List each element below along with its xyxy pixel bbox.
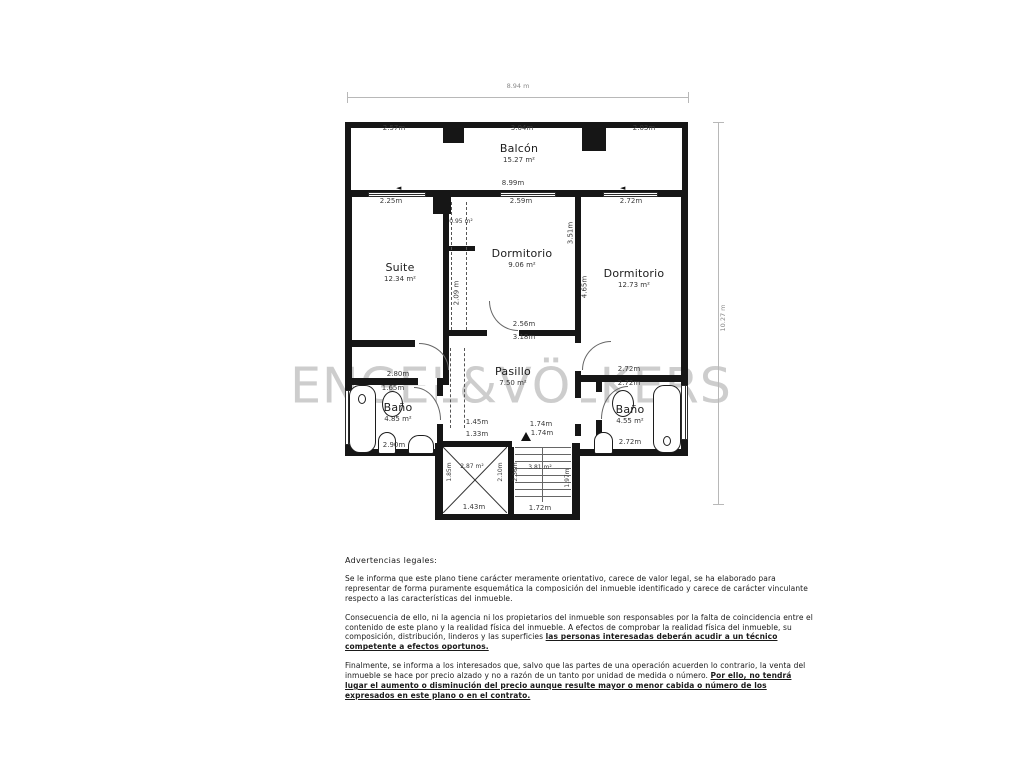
room-name: Baño [384, 402, 413, 415]
dim-label: 1.65m [382, 385, 404, 392]
door-arc [582, 341, 611, 370]
area-label: 3.81 m² [528, 465, 552, 471]
bidet-icon [408, 435, 434, 454]
floor-plan-page: ENGEL&VÖLKERS 8.94 m 10.27 m [0, 0, 1024, 768]
room-area: 12.73 m² [604, 281, 665, 289]
dim-label: 1.45m [466, 419, 488, 426]
dim-tick [347, 92, 348, 103]
room-area: 7.50 m² [495, 379, 531, 387]
dim-label: 2.59m [510, 198, 532, 205]
legal-disclaimer: Advertencias legales: Se le informa que … [345, 556, 815, 710]
door-opening [575, 398, 581, 424]
overall-width-dim: 8.94 m [507, 83, 530, 90]
wall [682, 122, 688, 196]
stairs-icon [515, 447, 571, 499]
room-dormitorio-2: Dormitorio 12.73 m² [604, 268, 665, 289]
dim-label: 3.04m [511, 125, 533, 132]
dim-label: 1.74m [531, 430, 553, 437]
room-pasillo: Pasillo 7.50 m² [495, 366, 531, 387]
area-label: 2.87 m² [460, 464, 484, 470]
wall [435, 514, 580, 520]
dim-label: 2.36m [513, 462, 519, 481]
room-bano-2: Baño 4.55 m² [616, 404, 645, 425]
room-name: Suite [384, 262, 416, 275]
room-name: Baño [616, 404, 645, 417]
dim-label: 2.72m [618, 366, 640, 373]
dim-label: 3.18m [513, 334, 535, 341]
legal-paragraph-2: Consecuencia de ello, ni la agencia ni l… [345, 613, 815, 653]
dim-label: 2.72m [619, 439, 641, 446]
overall-height-dim: 10.27 m [720, 304, 727, 331]
dim-label: 2.90m [383, 442, 405, 449]
wardrobe-dashed [450, 348, 465, 428]
dim-label: 1.97m [565, 468, 571, 487]
dim-tick [688, 92, 689, 103]
room-area: 4.85 m² [384, 415, 413, 423]
pillar [443, 123, 464, 143]
stairs-centerline [542, 447, 543, 502]
pillar [582, 123, 606, 151]
window [368, 192, 426, 197]
dim-label: 8.99m [502, 180, 524, 187]
dim-label: 2.80m [387, 371, 409, 378]
dim-label: 1.43m [463, 504, 485, 511]
dim-label: 1.72m [529, 505, 551, 512]
dim-label: 1.33m [466, 431, 488, 438]
dim-tick [713, 504, 724, 505]
room-name: Pasillo [495, 366, 531, 379]
dim-label: 1.85m [447, 462, 453, 481]
window [603, 192, 658, 197]
toilet-icon [594, 432, 613, 454]
room-area: 15.27 m² [500, 156, 538, 164]
room-bano-1: Baño 4.85 m² [384, 402, 413, 423]
dim-label: 2.72m [618, 380, 640, 387]
wall [345, 122, 351, 196]
dim-label: 1.74m [530, 421, 552, 428]
legal-paragraph-1: Se le informa que este plano tiene carác… [345, 574, 815, 604]
bathtub-drain-icon [358, 394, 366, 404]
dim-label: 2.03m [633, 125, 655, 132]
dim-tick [713, 122, 724, 123]
legal-paragraph-3: Finalmente, se informa a los interesados… [345, 661, 815, 701]
room-name: Dormitorio [492, 248, 553, 261]
dim-line [347, 97, 688, 98]
window [681, 385, 688, 440]
stairs-direction-icon [521, 432, 531, 441]
bathtub-drain-icon [663, 436, 671, 446]
dim-label: 2.57m [383, 125, 405, 132]
room-balcony: Balcón 15.27 m² [500, 143, 538, 164]
room-area: 12.34 m² [384, 275, 416, 283]
room-dormitorio-1: Dormitorio 9.06 m² [492, 248, 553, 269]
door-arrow-icon: ◄ [620, 185, 625, 192]
room-suite: Suite 12.34 m² [384, 262, 416, 283]
room-name: Balcón [500, 143, 538, 156]
dim-label: 2.10m [498, 462, 504, 481]
dim-label: 2.56m [513, 321, 535, 328]
dim-label: 3.51m [568, 222, 575, 244]
door-arrow-icon: ◄ [396, 185, 401, 192]
dim-label: 2.09 m [454, 281, 461, 306]
dim-label: 2.25m [380, 198, 402, 205]
window [500, 192, 556, 197]
wall [572, 443, 580, 520]
room-area: 4.55 m² [616, 417, 645, 425]
dim-label: 2.72m [620, 198, 642, 205]
dim-label: 4.65m [582, 276, 589, 298]
wall [443, 197, 449, 345]
room-area: 9.06 m² [492, 261, 553, 269]
dim-line [718, 122, 719, 505]
room-name: Dormitorio [604, 268, 665, 281]
door-opening [575, 343, 581, 371]
area-label: 0.95 m² [449, 219, 473, 225]
legal-title: Advertencias legales: [345, 556, 815, 565]
